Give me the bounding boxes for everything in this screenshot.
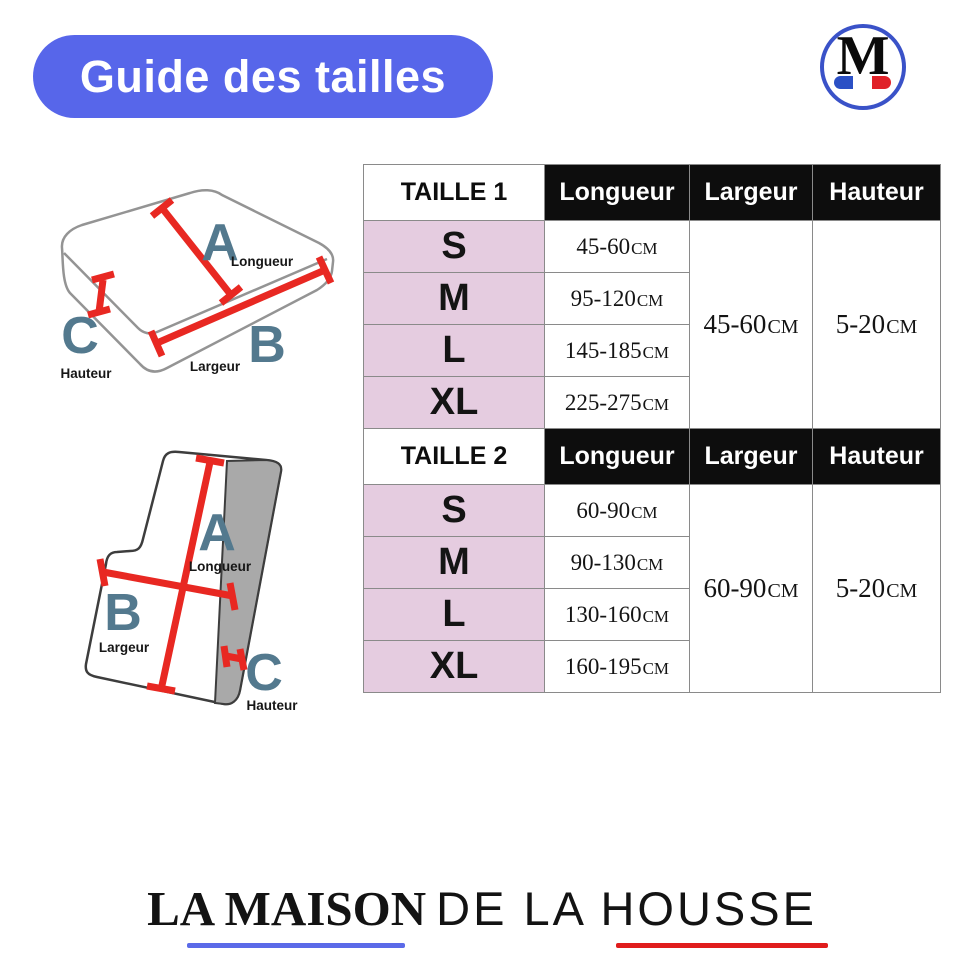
seat-cushion-diagram: A Longueur B Largeur C Hauteur <box>40 180 350 390</box>
hauteur-arrow <box>99 280 103 312</box>
size-cell: L <box>364 325 545 377</box>
table-header-row: TAILLE 1 Longueur Largeur Hauteur <box>364 165 941 221</box>
unit-label: CM <box>631 503 657 522</box>
dim-label-longueur: Longueur <box>231 254 294 269</box>
unit-label: CM <box>886 580 917 602</box>
dim-label-hauteur: Hauteur <box>246 698 298 713</box>
size-cell: M <box>364 273 545 325</box>
logo-letter: M <box>820 26 906 88</box>
dim-label-largeur: Largeur <box>99 640 150 655</box>
hauteur-merged-value: 5-20CM <box>813 221 941 429</box>
page-title: Guide des tailles <box>33 35 493 118</box>
longueur-value: 45-60CM <box>545 221 690 273</box>
column-header-hauteur: Hauteur <box>813 165 941 221</box>
unit-label: CM <box>886 316 917 338</box>
dim-letter-b: B <box>104 584 142 642</box>
column-header-longueur: Longueur <box>545 429 690 485</box>
unit-label: CM <box>643 659 669 678</box>
longueur-value: 60-90CM <box>545 485 690 537</box>
unit-label: CM <box>767 580 798 602</box>
longueur-value: 160-195CM <box>545 641 690 693</box>
column-header-longueur: Longueur <box>545 165 690 221</box>
unit-label: CM <box>637 555 663 574</box>
longueur-value: 130-160CM <box>545 589 690 641</box>
dim-letter-b: B <box>248 316 286 374</box>
size-table-1: TAILLE 1 Longueur Largeur Hauteur S 45-6… <box>363 164 941 429</box>
unit-label: CM <box>643 395 669 414</box>
dim-label-largeur: Largeur <box>190 359 241 374</box>
unit-label: CM <box>643 343 669 362</box>
unit-label: CM <box>631 239 657 258</box>
brand-logo: M <box>820 24 906 110</box>
unit-label: CM <box>643 607 669 626</box>
dim-letter-c: C <box>61 307 99 365</box>
table-title: TAILLE 1 <box>364 165 545 221</box>
table-header-row: TAILLE 2 Longueur Largeur Hauteur <box>364 429 941 485</box>
size-cell: M <box>364 537 545 589</box>
unit-label: CM <box>767 316 798 338</box>
size-cell: XL <box>364 641 545 693</box>
table-row: S 60-90CM 60-90CM 5-20CM <box>364 485 941 537</box>
longueur-value: 225-275CM <box>545 377 690 429</box>
column-header-hauteur: Hauteur <box>813 429 941 485</box>
table-title: TAILLE 2 <box>364 429 545 485</box>
backrest-cushion-diagram: A Longueur B Largeur C Hauteur <box>70 440 310 720</box>
dim-label-hauteur: Hauteur <box>60 366 112 381</box>
size-table-2: TAILLE 2 Longueur Largeur Hauteur S 60-9… <box>363 428 941 693</box>
dim-letter-c: C <box>245 644 283 702</box>
hauteur-merged-value: 5-20CM <box>813 485 941 693</box>
size-cell: S <box>364 485 545 537</box>
brand-name-serif: LA MAISON <box>147 881 426 936</box>
largeur-merged-value: 45-60CM <box>690 221 813 429</box>
table-row: S 45-60CM 45-60CM 5-20CM <box>364 221 941 273</box>
footer-blue-underline <box>187 943 405 948</box>
column-header-largeur: Largeur <box>690 429 813 485</box>
dim-label-longueur: Longueur <box>189 559 252 574</box>
largeur-merged-value: 60-90CM <box>690 485 813 693</box>
longueur-value: 90-130CM <box>545 537 690 589</box>
size-cell: S <box>364 221 545 273</box>
brand-wordmark: LA MAISONDE LA HOUSSE <box>0 880 964 937</box>
footer-red-underline <box>616 943 828 948</box>
longueur-value: 95-120CM <box>545 273 690 325</box>
dim-letter-a: A <box>198 504 236 562</box>
column-header-largeur: Largeur <box>690 165 813 221</box>
unit-label: CM <box>637 291 663 310</box>
size-cell: XL <box>364 377 545 429</box>
brand-name-sans: DE LA HOUSSE <box>436 882 817 935</box>
size-tables: TAILLE 1 Longueur Largeur Hauteur S 45-6… <box>363 164 940 693</box>
longueur-value: 145-185CM <box>545 325 690 377</box>
size-cell: L <box>364 589 545 641</box>
